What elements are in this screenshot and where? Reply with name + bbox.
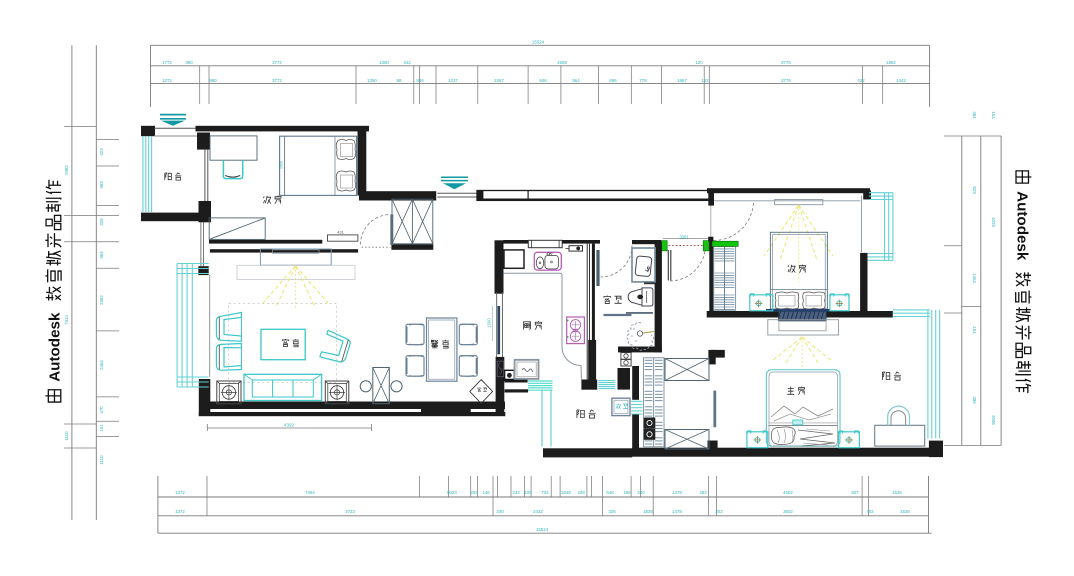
svg-text:Autodesk: Autodesk	[1013, 191, 1030, 261]
svg-text:240: 240	[637, 490, 645, 495]
svg-text:1110: 1110	[99, 455, 104, 465]
svg-text:292: 292	[470, 490, 478, 495]
svg-text:1772: 1772	[162, 60, 172, 65]
svg-text:1350: 1350	[379, 60, 389, 65]
svg-text:105: 105	[524, 490, 532, 495]
svg-text:328: 328	[99, 218, 104, 226]
svg-text:402: 402	[866, 509, 874, 514]
svg-text:151: 151	[972, 326, 977, 334]
svg-text:1535: 1535	[900, 509, 910, 514]
svg-text:1867: 1867	[677, 78, 687, 83]
svg-text:1237: 1237	[448, 78, 458, 83]
svg-text:98: 98	[397, 78, 402, 83]
svg-text:846: 846	[539, 78, 547, 83]
svg-text:15524: 15524	[536, 527, 549, 532]
svg-text:122: 122	[701, 78, 709, 83]
svg-text:396: 396	[972, 396, 977, 404]
svg-text:202: 202	[715, 509, 723, 514]
svg-text:3772: 3772	[272, 60, 282, 65]
svg-text:3348: 3348	[561, 490, 571, 495]
svg-text:Autodesk: Autodesk	[46, 312, 63, 382]
svg-text:829: 829	[972, 186, 977, 194]
svg-text:1882: 1882	[886, 60, 896, 65]
svg-text:423: 423	[99, 148, 104, 156]
svg-text:232: 232	[512, 490, 520, 495]
svg-text:380: 380	[185, 60, 193, 65]
svg-text:1110: 1110	[64, 431, 69, 441]
svg-text:120: 120	[695, 60, 703, 65]
svg-text:963: 963	[99, 181, 104, 189]
svg-text:1500: 1500	[487, 318, 492, 328]
svg-text:1463: 1463	[972, 273, 977, 283]
svg-text:2096: 2096	[991, 415, 996, 425]
svg-text:354: 354	[972, 111, 977, 119]
svg-text:1478: 1478	[672, 490, 682, 495]
svg-text:1828: 1828	[643, 509, 653, 514]
svg-text:154: 154	[991, 111, 996, 119]
svg-text:282: 282	[699, 490, 707, 495]
svg-text:6023: 6023	[447, 490, 457, 495]
svg-text:3301: 3301	[679, 235, 689, 240]
svg-text:4502: 4502	[783, 490, 793, 495]
svg-text:846: 846	[416, 78, 424, 83]
svg-text:648: 648	[606, 490, 614, 495]
svg-text:4508: 4508	[557, 60, 567, 65]
svg-text:1367: 1367	[494, 78, 504, 83]
svg-text:1372: 1372	[175, 490, 185, 495]
svg-text:3723: 3723	[345, 509, 355, 514]
svg-text:7464: 7464	[305, 490, 315, 495]
svg-text:696: 696	[609, 78, 617, 83]
svg-text:3502: 3502	[783, 509, 793, 514]
svg-text:1029: 1029	[991, 217, 996, 227]
svg-text:1372: 1372	[162, 78, 172, 83]
svg-text:980: 980	[209, 78, 217, 83]
svg-text:240: 240	[496, 509, 504, 514]
svg-text:778: 778	[639, 78, 647, 83]
svg-text:186: 186	[623, 490, 631, 495]
svg-text:431: 431	[337, 230, 344, 235]
svg-text:1535: 1535	[892, 490, 902, 495]
svg-text:964: 964	[99, 251, 104, 259]
svg-text:326: 326	[608, 509, 616, 514]
svg-text:470: 470	[99, 406, 104, 414]
svg-text:1442: 1442	[896, 78, 906, 83]
svg-text:146: 146	[482, 490, 490, 495]
svg-text:827: 827	[851, 490, 859, 495]
svg-text:7914: 7914	[64, 315, 69, 325]
svg-text:1372: 1372	[175, 509, 185, 514]
svg-text:151: 151	[99, 424, 104, 432]
svg-text:422: 422	[857, 78, 865, 83]
svg-text:1500: 1500	[279, 161, 283, 169]
svg-text:2464: 2464	[99, 360, 104, 370]
svg-text:734: 734	[541, 490, 549, 495]
svg-text:2982: 2982	[64, 165, 69, 175]
svg-text:3772: 3772	[272, 78, 282, 83]
svg-text:1478: 1478	[672, 509, 682, 514]
svg-text:564: 564	[572, 78, 580, 83]
svg-text:1350: 1350	[367, 78, 377, 83]
svg-text:15524: 15524	[532, 40, 545, 45]
svg-text:4392: 4392	[284, 423, 295, 428]
svg-text:442: 442	[403, 60, 411, 65]
svg-text:228: 228	[577, 490, 585, 495]
svg-text:3776: 3776	[781, 78, 791, 83]
svg-text:2432: 2432	[533, 509, 543, 514]
svg-text:2982: 2982	[99, 295, 104, 305]
svg-text:3776: 3776	[781, 60, 791, 65]
